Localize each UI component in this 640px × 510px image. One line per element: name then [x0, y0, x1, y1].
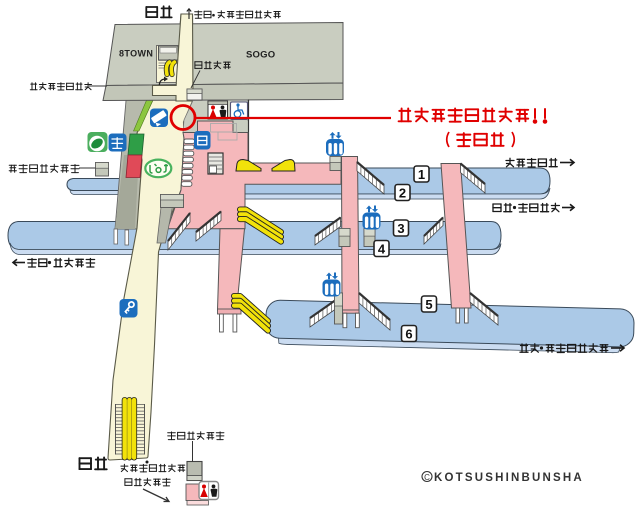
svg-text:KOTSUSHINBUNSHA: KOTSUSHINBUNSHA — [434, 472, 584, 484]
svg-text:SOGO: SOGO — [246, 50, 275, 61]
svg-text:6: 6 — [405, 326, 412, 341]
svg-text:4: 4 — [378, 241, 386, 256]
svg-text:1: 1 — [418, 167, 425, 182]
svg-text:C: C — [424, 473, 430, 482]
svg-text:5: 5 — [425, 297, 432, 312]
svg-text:8TOWN: 8TOWN — [119, 49, 153, 59]
svg-text:2: 2 — [399, 185, 406, 200]
svg-text:3: 3 — [397, 221, 404, 236]
